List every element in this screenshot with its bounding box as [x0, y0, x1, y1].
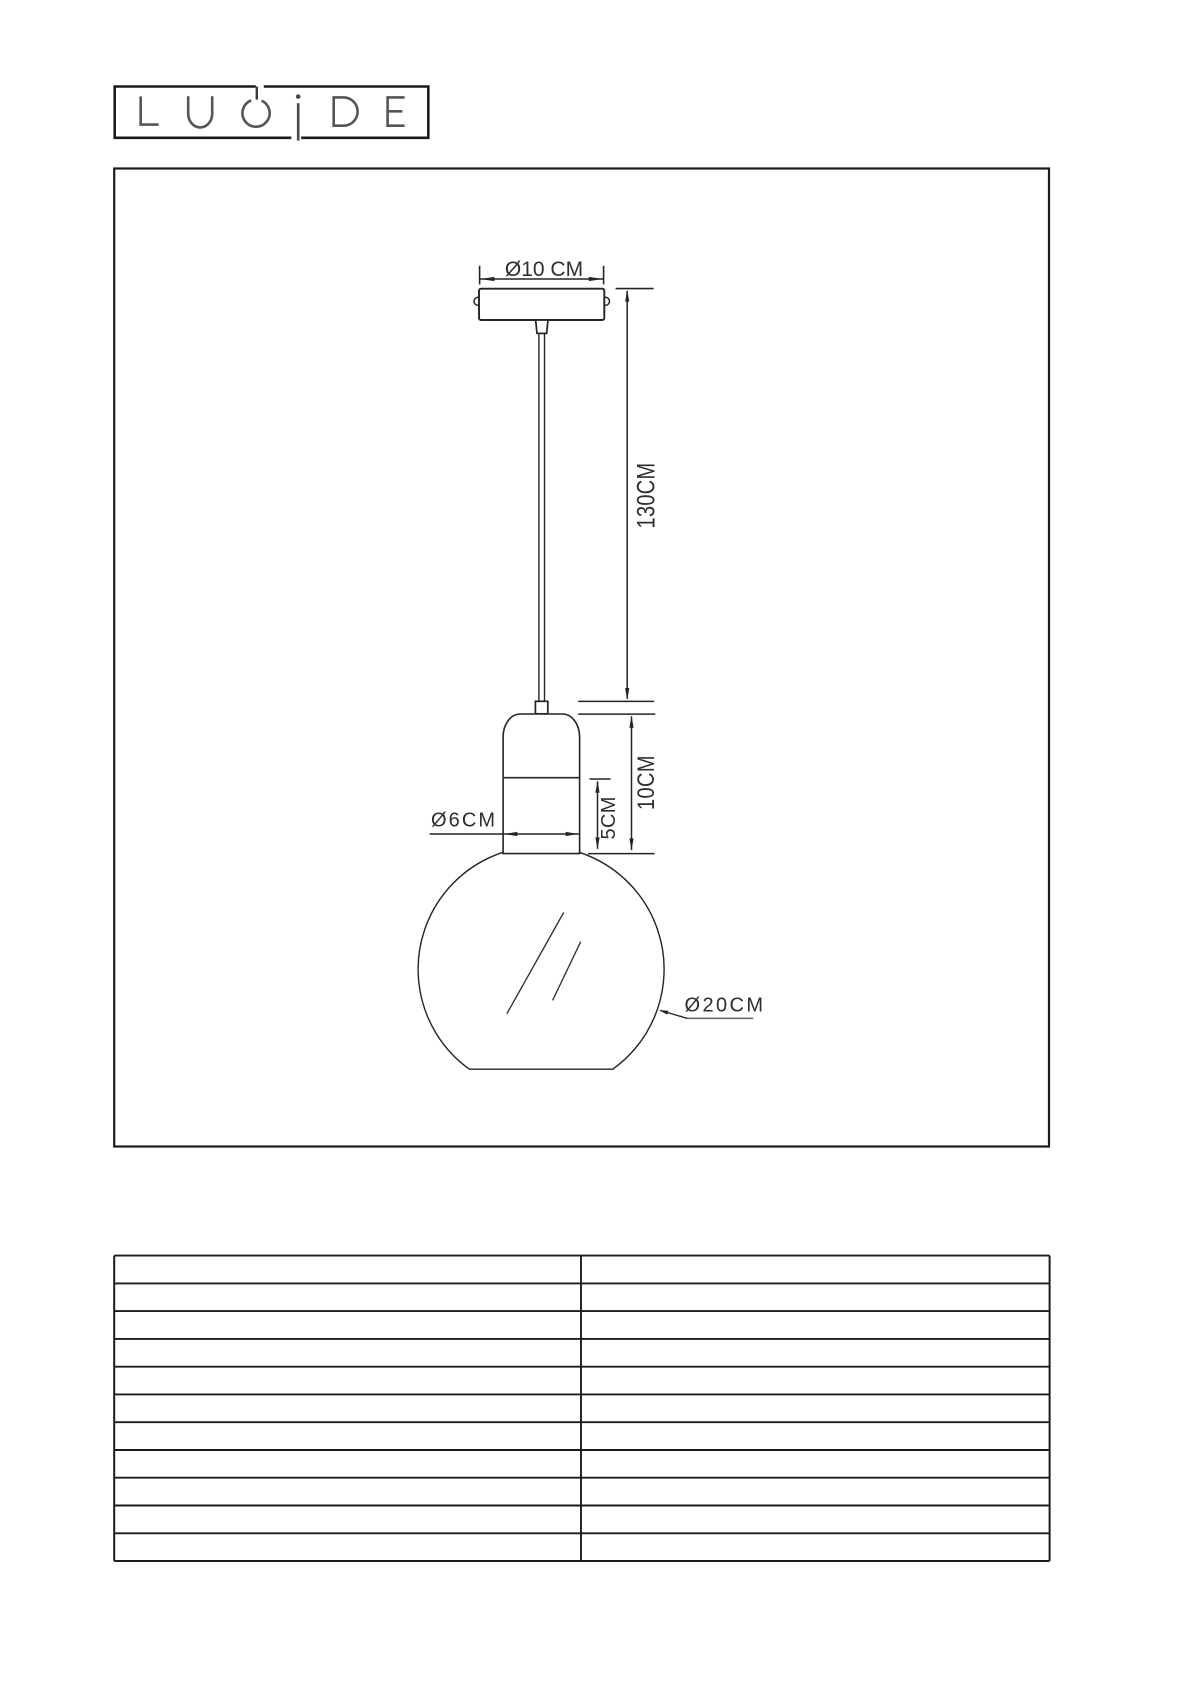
svg-text:Ø10 CM: Ø10 CM	[505, 258, 583, 281]
svg-text:130CM: 130CM	[632, 463, 660, 529]
svg-text:Ø6CM: Ø6CM	[431, 810, 497, 832]
svg-text:5CM: 5CM	[598, 796, 620, 839]
svg-text:Ø20CM: Ø20CM	[685, 995, 766, 1017]
svg-text:10CM: 10CM	[632, 755, 659, 810]
